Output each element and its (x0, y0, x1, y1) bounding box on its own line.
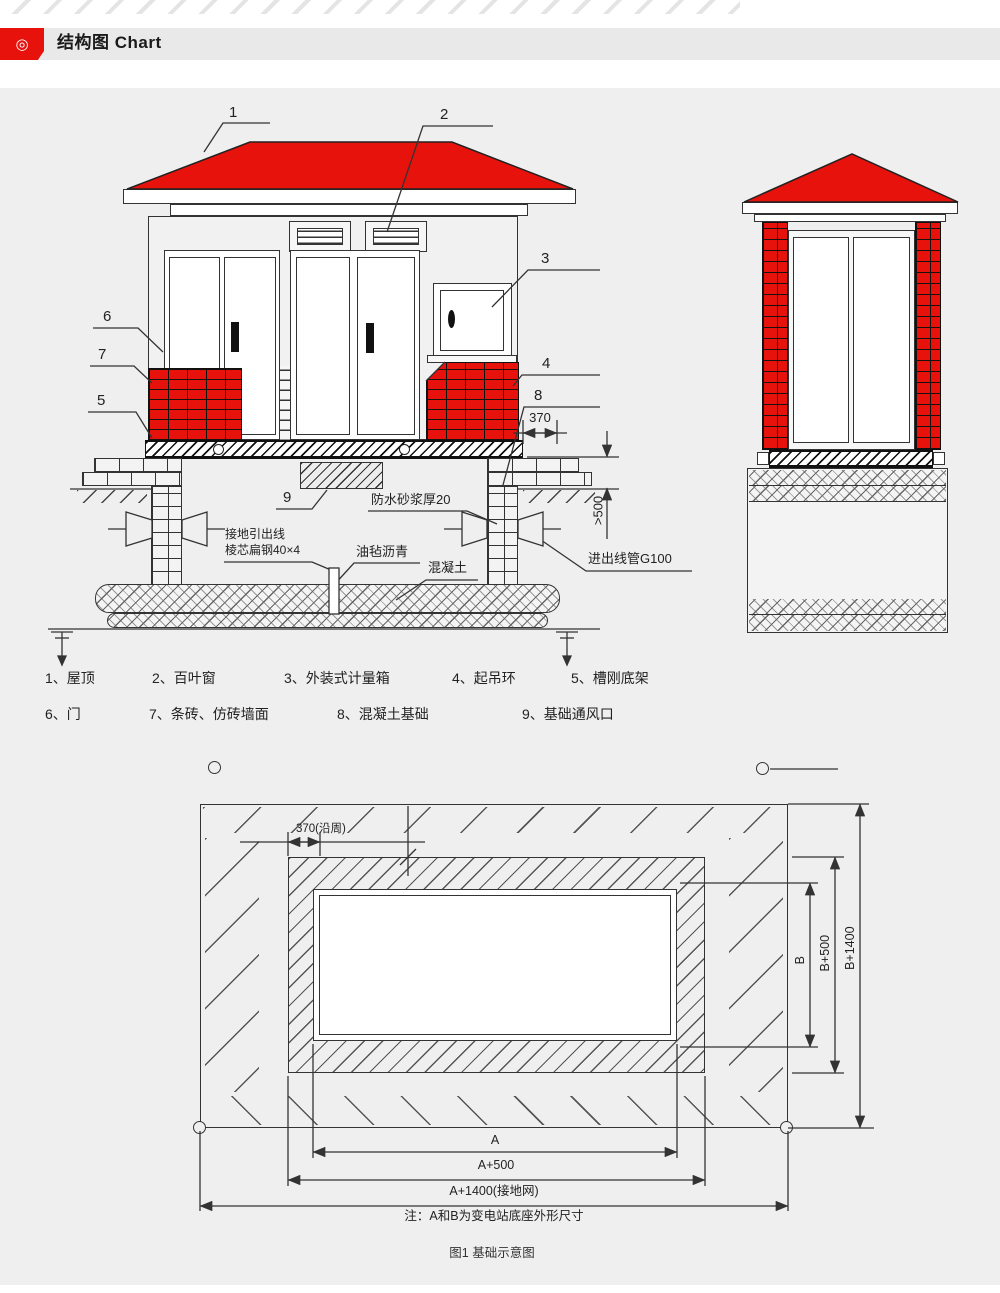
plan-dim-b1400: B+1400 (843, 916, 857, 980)
side-brick-column-left (762, 222, 788, 450)
base-ring-right (399, 444, 410, 455)
metering-box-door (440, 290, 504, 351)
callout-4: 4 (542, 355, 550, 372)
plan-dim-a: A (455, 1133, 535, 1147)
callout-1: 1 (229, 104, 237, 121)
plan-dim-a1400: A+1400(接地网) (424, 1184, 564, 1198)
legend-item-louver: 2、百叶窗 (152, 670, 216, 686)
channel-steel-base (145, 440, 523, 459)
side-base-bracket-left (757, 452, 769, 465)
roof-fascia-band (123, 189, 576, 204)
brick-wall-left (148, 368, 242, 441)
legend-item-foundation-vent: 9、基础通风口 (522, 706, 614, 722)
roof-fascia-band-inner (170, 204, 528, 216)
target-circle-icon: ◎ (0, 28, 44, 60)
brick-wall-right (426, 362, 519, 441)
side-channel-base (769, 450, 933, 468)
plan-dim-370: 370(沿周) (296, 823, 346, 836)
pier-left-cap-row2 (82, 472, 182, 486)
door-middle-panel-2 (357, 257, 415, 435)
top-decor-stripes (0, 0, 740, 14)
plan-marker-circle-top-left (208, 761, 221, 774)
label-concrete: 混凝土 (428, 561, 467, 576)
plan-dim-b: B (793, 938, 807, 982)
pier-left-cap-row1 (94, 458, 182, 472)
side-foundation-rubble-4 (749, 615, 946, 631)
plan-note: 注：A和B为变电站底座外形尺寸 (374, 1209, 614, 1223)
legend-item-roof: 1、屋顶 (45, 670, 95, 686)
callout-2: 2 (440, 106, 448, 123)
side-fascia-band-inner (754, 214, 946, 222)
callout-8: 8 (534, 387, 542, 404)
side-base-bracket-right (933, 452, 945, 465)
foundation-vent (300, 462, 383, 489)
dim-gt500: >500 (592, 488, 607, 532)
base-ring-left (213, 444, 224, 455)
callout-6: 6 (103, 308, 111, 325)
plan-dim-b500: B+500 (818, 925, 832, 981)
louver-left-slats (297, 228, 343, 245)
legend-item-brick-wall: 7、条砖、仿砖墙面 (149, 706, 269, 722)
brick-pier-left (151, 486, 182, 586)
plan-dim-a500: A+500 (456, 1158, 536, 1172)
concrete-strip-lower (107, 613, 548, 628)
side-door-panel-2 (853, 237, 910, 443)
plan-marker-circle-top-right (756, 762, 769, 775)
catalog-page: ◎ 结构图 Chart (0, 0, 1000, 1293)
plan-tick-strip-right (729, 838, 783, 1092)
legend-item-concrete-foundation: 8、混凝土基础 (337, 706, 429, 722)
pier-right-cap-row1 (487, 458, 579, 472)
label-grounding-lead: 接地引出线 (225, 528, 285, 542)
side-foundation-rubble-2 (749, 486, 946, 502)
callout-5: 5 (97, 392, 105, 409)
side-foundation-rubble-3 (749, 599, 946, 615)
ladder-rungs (279, 366, 291, 441)
label-waterproof-mortar: 防水砂浆厚20 (371, 493, 450, 508)
ground-hatch-right (523, 490, 595, 503)
plan-base-outline-outer (313, 889, 677, 1041)
brick-pier-right (487, 486, 518, 586)
plan-tick-strip-left (205, 838, 259, 1092)
label-conduit-g100: 进出线管G100 (588, 552, 672, 567)
door-middle-panel-1 (296, 257, 350, 435)
metering-box-sill (427, 355, 517, 363)
callout-9: 9 (283, 489, 291, 506)
plan-marker-circle-bottom-right (780, 1121, 793, 1134)
callout-7: 7 (98, 346, 106, 363)
plan-marker-circle-bottom-left (193, 1121, 206, 1134)
side-foundation-rubble-1 (749, 470, 946, 486)
dim-370: 370 (521, 411, 559, 426)
plan-tick-strip-top (203, 807, 785, 833)
pier-right-cap-row2 (487, 472, 592, 486)
side-brick-column-right (915, 222, 941, 450)
page-title: 结构图 Chart (57, 33, 162, 53)
louver-right-slats (373, 228, 419, 245)
label-grounding-steel: 棱芯扁钢40×4 (225, 544, 300, 558)
legend-item-metering-box: 3、外装式计量箱 (284, 670, 390, 686)
callout-3: 3 (541, 250, 549, 267)
plan-tick-strip-bottom (203, 1096, 785, 1125)
concrete-strip-upper (95, 584, 560, 613)
legend-item-door: 6、门 (45, 706, 81, 722)
side-fascia-band (742, 202, 958, 214)
legend-item-channel-base: 5、槽刚底架 (571, 670, 649, 686)
label-asphalt-felt: 油毡沥青 (356, 545, 408, 560)
legend-item-lifting-ring: 4、起吊环 (452, 670, 516, 686)
ground-hatch-left (77, 490, 147, 503)
side-door-panel-1 (793, 237, 849, 443)
figure-caption: 图1 基础示意图 (392, 1246, 592, 1260)
plan-base-outline-inner (319, 895, 671, 1035)
